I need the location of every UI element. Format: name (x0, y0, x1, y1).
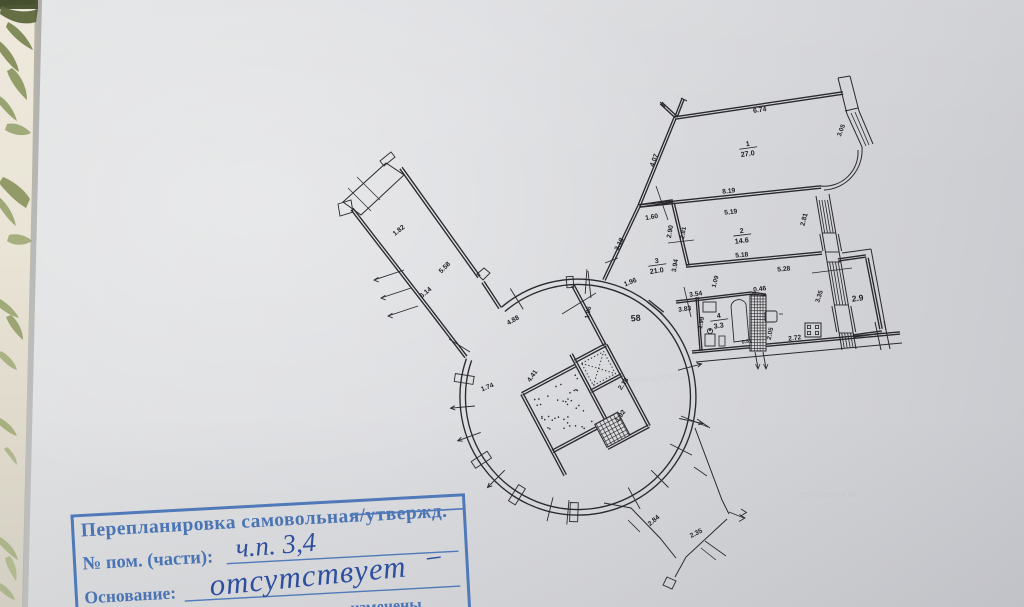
svg-text:14.6: 14.6 (734, 235, 749, 246)
svg-text:21.0: 21.0 (649, 265, 664, 276)
svg-text:1.60: 1.60 (645, 213, 659, 222)
svg-text:3.18: 3.18 (614, 237, 626, 252)
svg-text:27.0: 27.0 (740, 148, 755, 159)
svg-text:2.9: 2.9 (851, 292, 864, 304)
svg-text:1.99: 1.99 (697, 316, 706, 330)
svg-text:5.28: 5.28 (777, 265, 791, 273)
svg-text:1.09: 1.09 (711, 274, 721, 288)
svg-text:Основание:: Основание: (84, 583, 177, 607)
svg-text:6.14: 6.14 (419, 286, 434, 300)
svg-text:3.35: 3.35 (814, 289, 825, 303)
svg-text:3: 3 (654, 258, 659, 265)
svg-text:2: 2 (739, 228, 744, 235)
svg-text:изменения не: изменения не (800, 489, 858, 499)
svg-text:1.74: 1.74 (480, 382, 495, 393)
svg-text:1.92: 1.92 (614, 409, 627, 424)
svg-text:2.84: 2.84 (647, 514, 662, 528)
svg-text:5.58: 5.58 (438, 261, 452, 275)
svg-text:5.19: 5.19 (724, 208, 738, 217)
svg-text:58: 58 (630, 313, 641, 324)
svg-text:4.88: 4.88 (506, 314, 521, 327)
svg-text:№ пом. (части):: № пом. (части): (82, 547, 214, 574)
svg-text:2.05: 2.05 (766, 326, 776, 340)
svg-text:0.46: 0.46 (753, 285, 767, 294)
svg-text:2.90: 2.90 (666, 224, 675, 238)
svg-text:1.82: 1.82 (392, 224, 407, 238)
svg-text:2.81: 2.81 (679, 226, 688, 240)
svg-text:2.81: 2.81 (799, 212, 809, 227)
svg-text:изменены: изменены (350, 596, 423, 607)
svg-text:1: 1 (745, 141, 750, 148)
svg-text:2.35: 2.35 (689, 527, 704, 539)
svg-text:3.94: 3.94 (671, 258, 680, 272)
svg-text:3.05: 3.05 (836, 123, 847, 138)
svg-text:4.41: 4.41 (526, 369, 539, 384)
svg-text:3.3: 3.3 (713, 320, 724, 330)
svg-text:5.18: 5.18 (735, 251, 749, 259)
svg-text:1.96: 1.96 (623, 277, 638, 288)
svg-text:6.74: 6.74 (753, 106, 767, 115)
svg-text:4: 4 (716, 313, 721, 320)
